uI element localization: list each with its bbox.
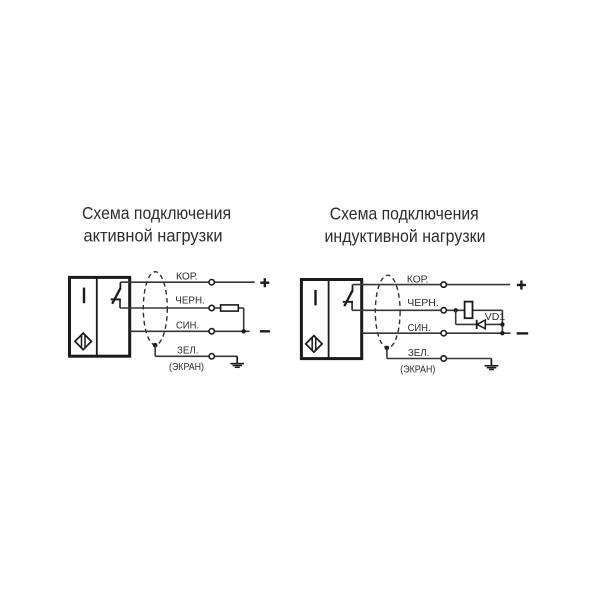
svg-text:ЧЕРН.: ЧЕРН. (175, 294, 205, 306)
svg-text:КОР.: КОР. (176, 271, 198, 283)
svg-text:ЧЕРН.: ЧЕРН. (407, 297, 439, 309)
svg-text:ЗЕЛ.: ЗЕЛ. (177, 345, 199, 357)
svg-text:ЗЕЛ.: ЗЕЛ. (408, 347, 430, 359)
svg-text:СИН.: СИН. (176, 320, 199, 332)
svg-text:индуктивной нагрузки: индуктивной нагрузки (325, 226, 486, 246)
svg-text:(ЭКРАН): (ЭКРАН) (400, 364, 435, 375)
svg-text:(ЭКРАН): (ЭКРАН) (169, 362, 204, 373)
svg-text:КОР.: КОР. (407, 273, 429, 285)
svg-text:VD1: VD1 (485, 311, 506, 323)
svg-text:активной нагрузки: активной нагрузки (84, 226, 223, 246)
svg-text:Схема подключения: Схема подключения (82, 203, 231, 223)
svg-text:СИН.: СИН. (408, 322, 431, 334)
svg-text:Схема подключения: Схема подключения (330, 203, 479, 223)
